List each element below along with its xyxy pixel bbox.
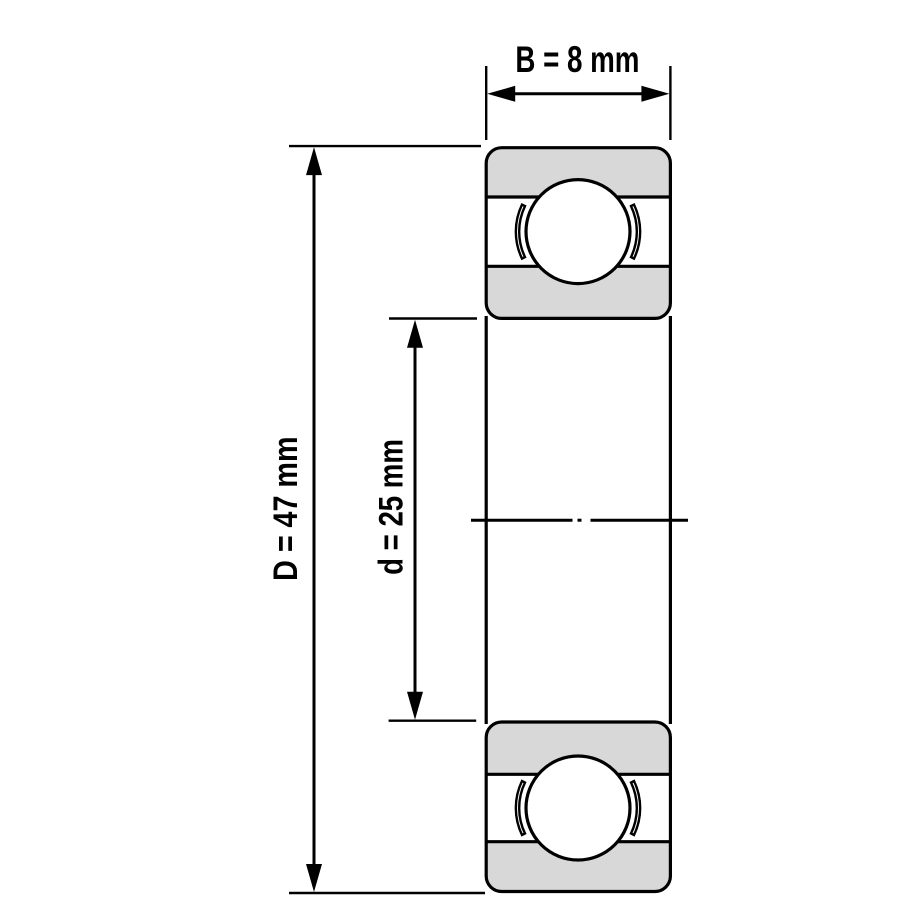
svg-text:d = 25 mm: d = 25 mm bbox=[372, 439, 411, 575]
svg-text:D = 47 mm: D = 47 mm bbox=[265, 437, 304, 581]
svg-text:B = 8 mm: B = 8 mm bbox=[515, 38, 639, 80]
